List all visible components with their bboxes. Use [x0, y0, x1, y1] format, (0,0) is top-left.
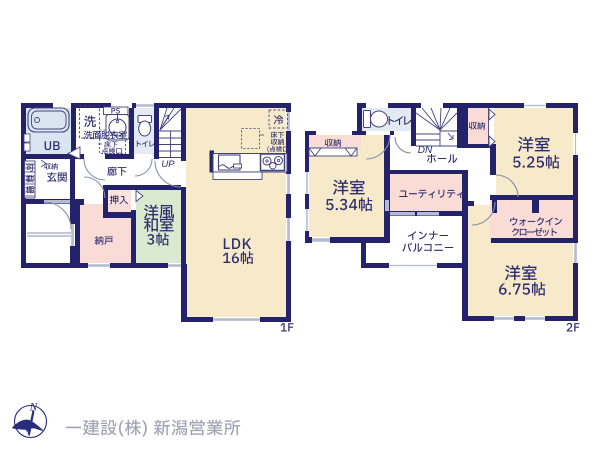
svg-text:UP: UP [161, 159, 175, 170]
svg-text:DN: DN [418, 145, 433, 156]
